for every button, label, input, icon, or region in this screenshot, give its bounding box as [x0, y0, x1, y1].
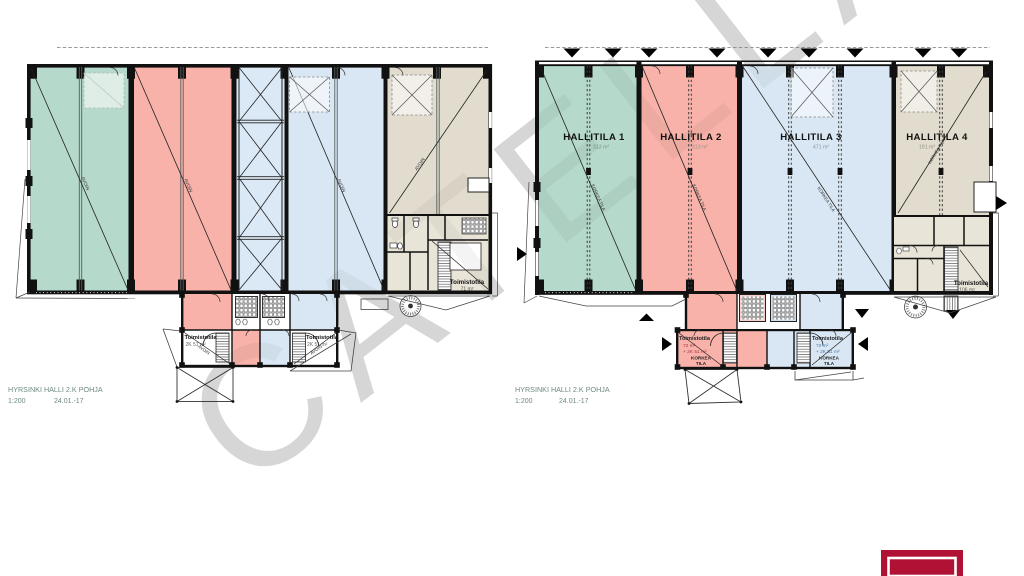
- svg-text:TILA: TILA: [824, 361, 835, 366]
- svg-text:471 m²: 471 m²: [813, 145, 829, 151]
- svg-text:Toimistotila: Toimistotila: [954, 280, 989, 287]
- svg-text:HYRSINKI HALLI 2.K POHJA: HYRSINKI HALLI 2.K POHJA: [515, 385, 610, 394]
- svg-text:HALLITILA 4: HALLITILA 4: [906, 132, 968, 143]
- svg-text:24.01.-17: 24.01.-17: [559, 398, 589, 405]
- svg-text:HALLITILA 3: HALLITILA 3: [780, 132, 842, 143]
- svg-text:191 m²: 191 m²: [919, 145, 935, 151]
- svg-text:TILA: TILA: [696, 361, 707, 366]
- svg-text:1:200: 1:200: [8, 398, 26, 405]
- svg-text:KORKEA: KORKEA: [691, 356, 712, 361]
- svg-text:Toimistotila: Toimistotila: [812, 336, 844, 342]
- svg-text:106 m²: 106 m²: [959, 288, 975, 294]
- svg-text:HYRSINKI HALLI 2.K POHJA: HYRSINKI HALLI 2.K POHJA: [8, 385, 103, 394]
- svg-text:1:200: 1:200: [515, 398, 533, 405]
- svg-text:24.01.-17: 24.01.-17: [54, 398, 84, 405]
- svg-text:72 m²: 72 m²: [816, 343, 829, 349]
